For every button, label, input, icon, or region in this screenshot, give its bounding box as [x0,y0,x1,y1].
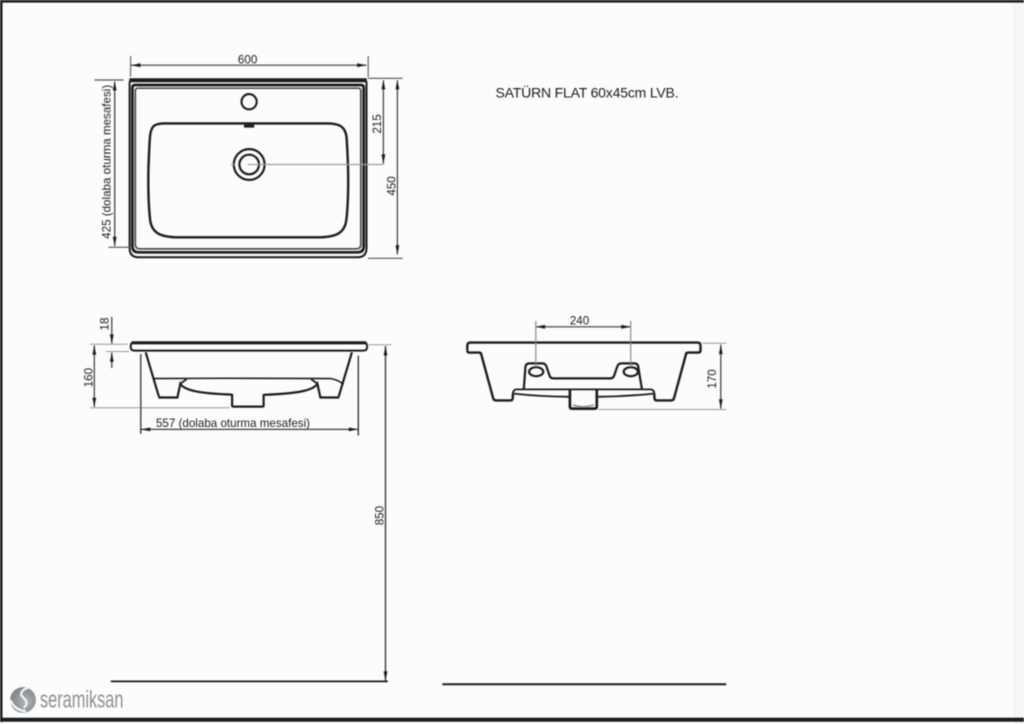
svg-text:seramiksan: seramiksan [40,686,123,713]
svg-text:850: 850 [374,506,387,525]
svg-text:240: 240 [570,314,589,327]
svg-text:425 (dolaba oturma mesafesi): 425 (dolaba oturma mesafesi) [101,85,114,239]
svg-text:170: 170 [706,369,719,388]
svg-text:160: 160 [82,368,95,387]
svg-text:450: 450 [386,176,399,195]
svg-text:18: 18 [98,318,111,331]
svg-text:600: 600 [238,53,257,66]
svg-text:SATÜRN FLAT 60x45cm LVB.: SATÜRN FLAT 60x45cm LVB. [496,83,679,100]
svg-text:557 (dolaba oturma mesafesi): 557 (dolaba oturma mesafesi) [156,417,310,430]
svg-text:215: 215 [371,114,384,133]
